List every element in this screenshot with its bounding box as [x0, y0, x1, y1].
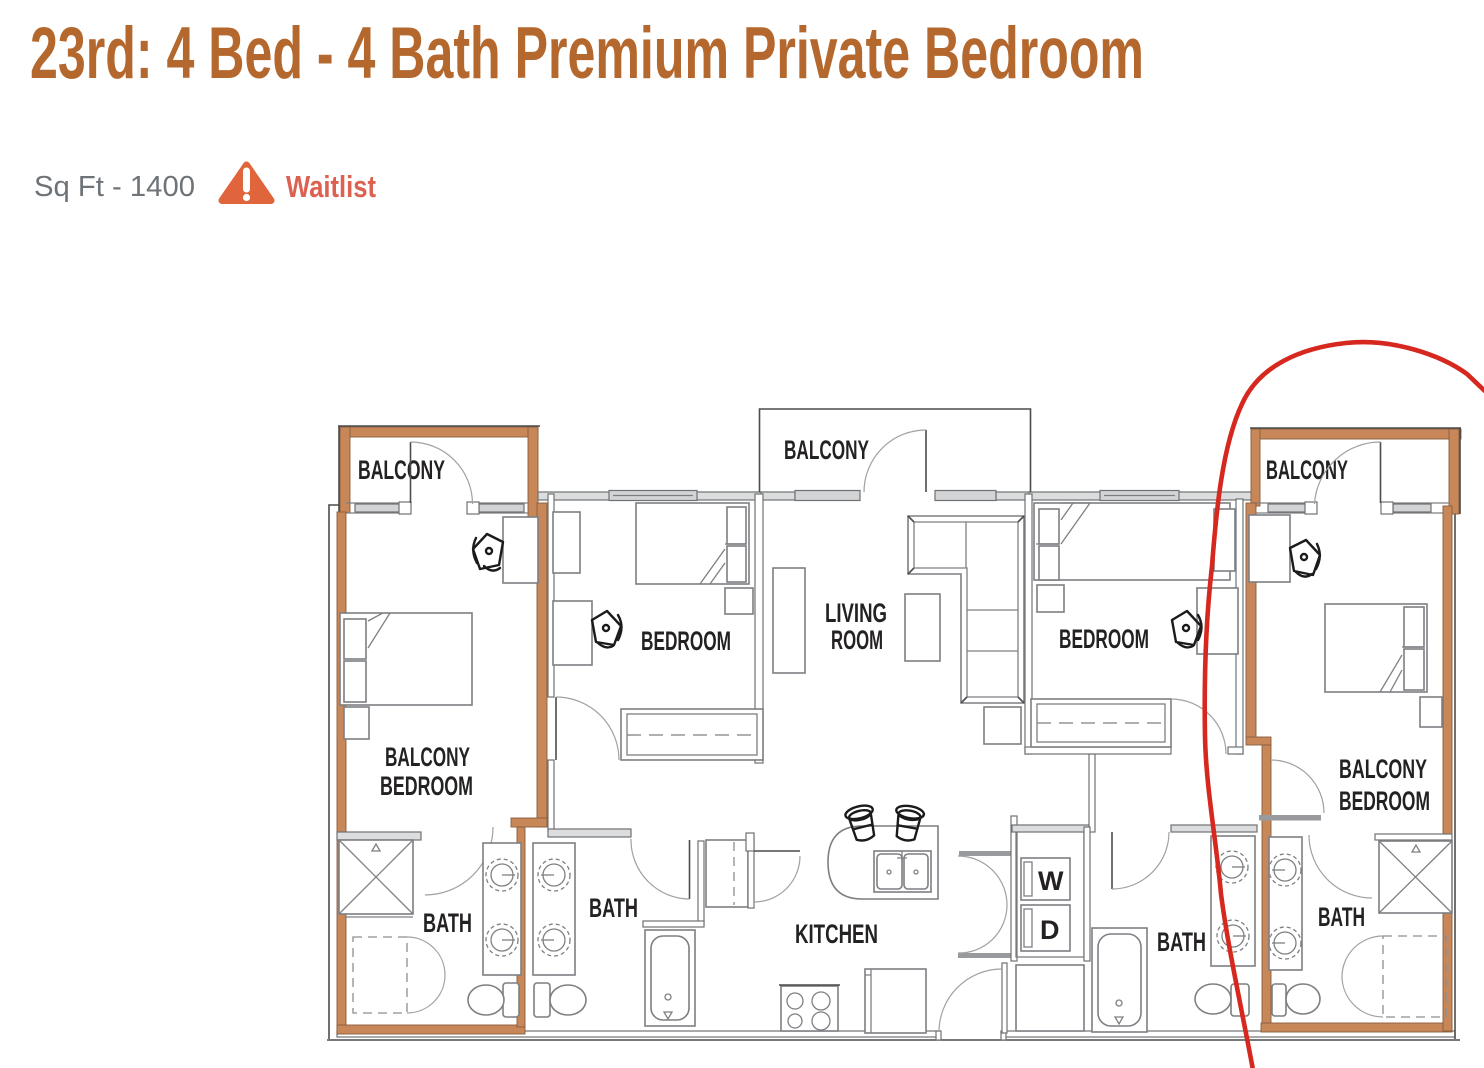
svg-text:BALCONY: BALCONY [1339, 754, 1427, 784]
svg-text:BALCONY: BALCONY [784, 435, 869, 465]
svg-text:BALCONY: BALCONY [358, 455, 445, 485]
svg-text:BATH: BATH [423, 908, 472, 938]
svg-text:ROOM: ROOM [831, 625, 883, 655]
svg-text:Waitlist: Waitlist [286, 169, 376, 204]
svg-text:BALCONY: BALCONY [385, 742, 470, 772]
svg-text:BEDROOM: BEDROOM [641, 626, 731, 656]
svg-text:BATH: BATH [1157, 927, 1206, 957]
svg-text:D: D [1040, 915, 1060, 945]
svg-text:BATH: BATH [589, 893, 638, 923]
svg-text:BEDROOM: BEDROOM [1339, 786, 1430, 816]
svg-text:BEDROOM: BEDROOM [1059, 624, 1149, 654]
svg-text:W: W [1038, 866, 1064, 896]
svg-text:23rd: 4 Bed - 4 Bath Premium P: 23rd: 4 Bed - 4 Bath Premium Private Bed… [30, 13, 1144, 94]
svg-text:BEDROOM: BEDROOM [380, 771, 473, 801]
svg-text:Sq Ft - 1400: Sq Ft - 1400 [34, 171, 195, 203]
svg-text:LIVING: LIVING [825, 598, 887, 628]
svg-text:KITCHEN: KITCHEN [795, 919, 878, 949]
svg-text:BATH: BATH [1318, 902, 1365, 932]
